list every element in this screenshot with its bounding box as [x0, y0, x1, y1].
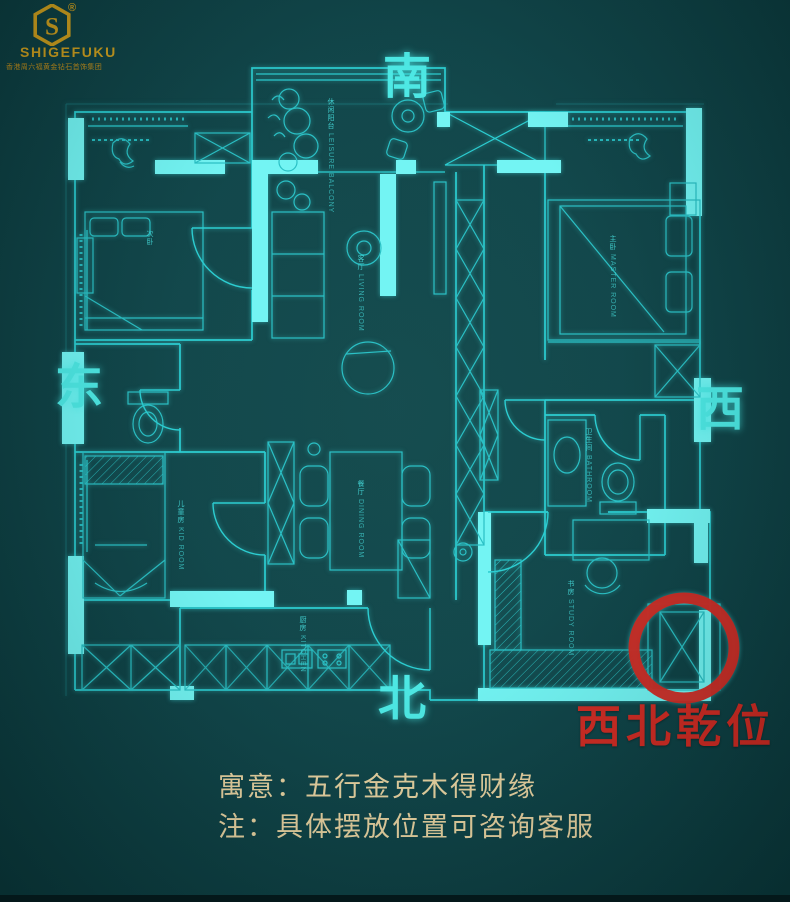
room-label-bathroom: 卫生间 BATHROOM [584, 428, 592, 503]
bottom-bar [0, 895, 790, 902]
room-label-kitchen: 厨房 KITCHEN [298, 616, 306, 673]
room-label-second-bedroom: 次卧 [145, 230, 153, 246]
brand-tagline: 香港周六福黄金钻石首饰集团 [6, 62, 102, 72]
room-label-living: 客厅 LIVING ROOM [356, 255, 364, 332]
svg-text:S: S [45, 13, 59, 40]
northwest-qian-label: 西北乾位 [576, 704, 776, 749]
highlight-circle [634, 598, 734, 698]
room-label-dining: 餐厅 DINING ROOM [356, 480, 364, 558]
compass-south-label: 南 [383, 54, 431, 102]
compass-east-label: 东 [55, 364, 103, 412]
registered-mark: ® [68, 2, 76, 14]
room-label-kids-room: 儿童房 KID ROOM [176, 500, 184, 570]
feng-shui-floorplan-poster: S ® SHIGEFUKU 香港周六福黄金钻石首饰集团 南 东 西 北 休闲阳台… [0, 0, 790, 902]
compass-north-label: 北 [378, 676, 426, 724]
room-label-study: 书房 STUDY ROOM [566, 580, 574, 656]
floorplan-drawing [0, 0, 790, 902]
note-text: 注：具体摆放位置可咨询客服 [218, 814, 595, 841]
meaning-text: 寓意：五行金克木得财缘 [218, 774, 537, 801]
brand-name: SHIGEFUKU [20, 44, 117, 60]
compass-west-label: 西 [696, 386, 744, 434]
room-label-master-bedroom: 主卧 MASTER ROOM [608, 235, 616, 318]
room-label-balcony: 休闲阳台 LEISURE BALCONY [326, 98, 334, 213]
